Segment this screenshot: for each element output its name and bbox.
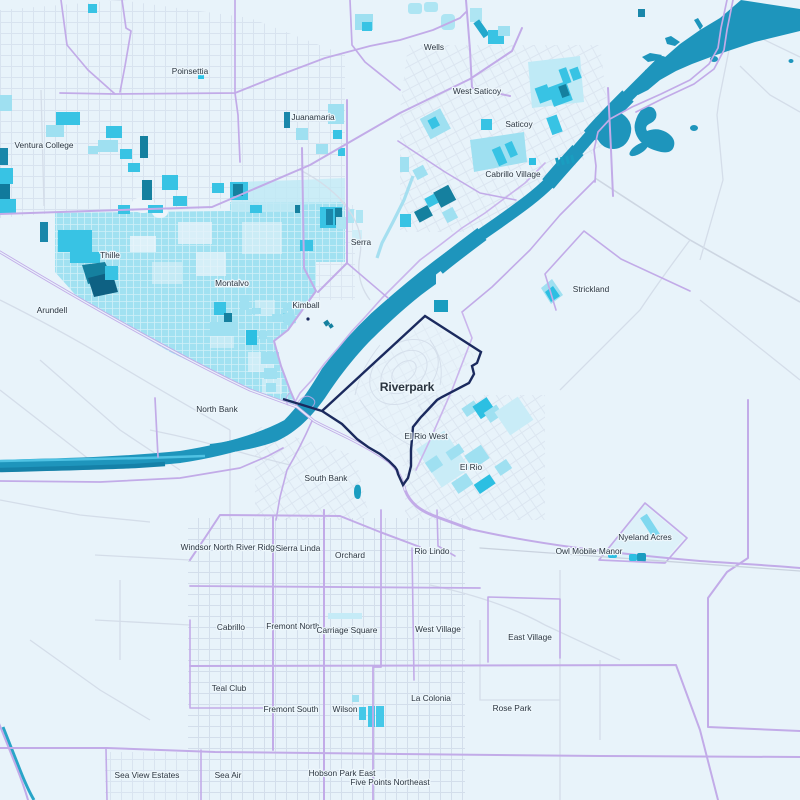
svg-text:Strickland: Strickland (573, 284, 610, 294)
svg-text:El Rio: El Rio (460, 462, 483, 472)
svg-text:Windsor North River Ridge: Windsor North River Ridge (181, 542, 280, 552)
svg-text:Arundell: Arundell (37, 305, 68, 315)
svg-text:Sierra Linda: Sierra Linda (276, 543, 321, 553)
svg-text:Five Points Northeast: Five Points Northeast (350, 777, 430, 787)
svg-text:Cabrillo: Cabrillo (217, 622, 246, 632)
svg-text:Fremont North: Fremont North (266, 621, 320, 631)
svg-text:Juanamaria: Juanamaria (291, 112, 335, 122)
svg-text:Wilson: Wilson (333, 704, 358, 714)
svg-text:Sea View Estates: Sea View Estates (115, 770, 180, 780)
svg-text:Orchard: Orchard (335, 550, 365, 560)
svg-text:Ventura College: Ventura College (14, 140, 73, 150)
svg-text:Nyeland Acres: Nyeland Acres (618, 532, 672, 542)
svg-text:Carriage Square: Carriage Square (317, 625, 378, 635)
svg-text:Sea Air: Sea Air (215, 770, 242, 780)
svg-text:Rose Park: Rose Park (493, 703, 533, 713)
svg-text:La Colonia: La Colonia (411, 693, 451, 703)
svg-text:Fremont South: Fremont South (264, 704, 319, 714)
svg-text:Owl Mobile Manor: Owl Mobile Manor (556, 546, 623, 556)
svg-text:Thille: Thille (100, 250, 120, 260)
svg-text:Saticoy: Saticoy (505, 119, 533, 129)
svg-text:El Rio West: El Rio West (404, 431, 448, 441)
svg-text:Teal Club: Teal Club (212, 683, 247, 693)
svg-text:Cabrillo Village: Cabrillo Village (485, 169, 541, 179)
svg-text:Riverpark: Riverpark (380, 380, 435, 394)
svg-text:North Bank: North Bank (196, 404, 238, 414)
svg-text:East Village: East Village (508, 632, 552, 642)
svg-text:Serra: Serra (351, 237, 372, 247)
svg-text:West Saticoy: West Saticoy (453, 86, 502, 96)
svg-text:Rio Lindo: Rio Lindo (414, 546, 449, 556)
svg-text:West Village: West Village (415, 624, 461, 634)
svg-text:Wells: Wells (424, 42, 444, 52)
svg-text:South Bank: South Bank (305, 473, 349, 483)
svg-text:Montalvo: Montalvo (215, 278, 249, 288)
svg-text:Poinsettia: Poinsettia (172, 66, 209, 76)
svg-text:Kimball: Kimball (292, 300, 319, 310)
